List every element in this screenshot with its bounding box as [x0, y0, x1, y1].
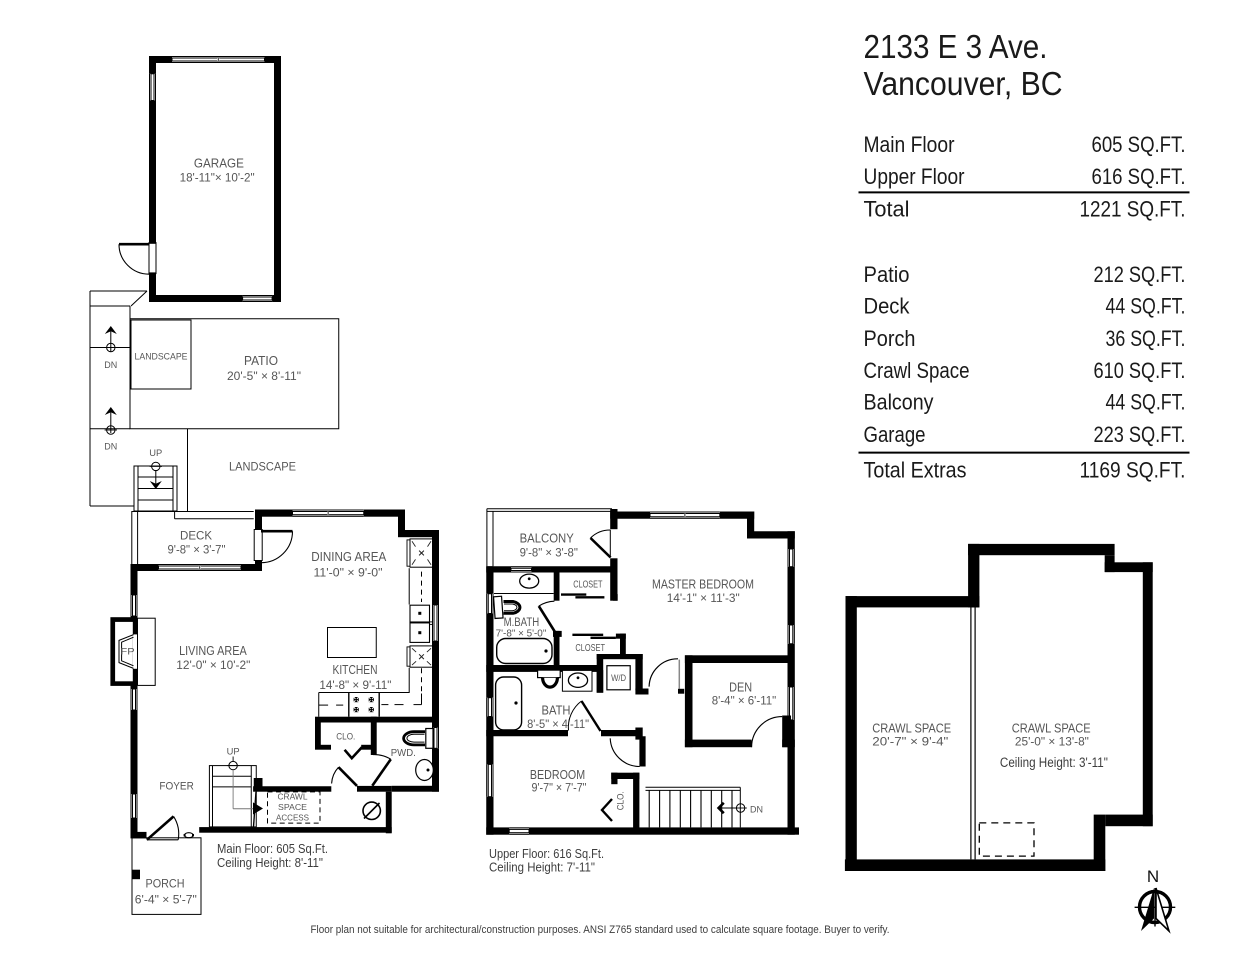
svg-text:20'-5" × 8'-11": 20'-5" × 8'-11": [227, 369, 301, 383]
svg-text:616 SQ.FT.: 616 SQ.FT.: [1092, 164, 1186, 189]
svg-text:BATH: BATH: [542, 703, 571, 717]
svg-text:DEN: DEN: [729, 679, 752, 694]
svg-text:DN: DN: [750, 804, 763, 815]
svg-text:FOYER: FOYER: [159, 780, 193, 792]
svg-text:610 SQ.FT.: 610 SQ.FT.: [1094, 358, 1186, 383]
svg-text:14'-8" × 9'-11": 14'-8" × 9'-11": [319, 678, 391, 692]
svg-text:Vancouver, BC: Vancouver, BC: [864, 65, 1063, 102]
svg-text:9'-8" × 3'-7": 9'-8" × 3'-7": [168, 544, 226, 556]
svg-text:223 SQ.FT.: 223 SQ.FT.: [1094, 422, 1186, 447]
svg-text:212 SQ.FT.: 212 SQ.FT.: [1094, 262, 1186, 287]
svg-text:CLOSET: CLOSET: [575, 643, 605, 654]
svg-text:11'-0" × 9'-0": 11'-0" × 9'-0": [314, 565, 383, 579]
svg-text:Main Floor: 605 Sq.Ft.: Main Floor: 605 Sq.Ft.: [217, 841, 328, 856]
svg-text:Patio: Patio: [864, 262, 910, 287]
svg-text:CLO.: CLO.: [616, 791, 627, 810]
svg-text:LANDSCAPE: LANDSCAPE: [229, 460, 296, 474]
svg-text:BALCONY: BALCONY: [520, 532, 575, 546]
svg-text:8'-5" × 4'-11": 8'-5" × 4'-11": [527, 717, 589, 731]
svg-text:Ceiling Height: 3'-11": Ceiling Height: 3'-11": [1000, 755, 1108, 770]
svg-text:CLOSET: CLOSET: [573, 580, 602, 591]
svg-text:Crawl Space: Crawl Space: [864, 358, 970, 383]
svg-text:PATIO: PATIO: [244, 354, 278, 368]
svg-text:605 SQ.FT.: 605 SQ.FT.: [1092, 132, 1186, 157]
svg-text:9'-8" × 3'-8": 9'-8" × 3'-8": [520, 548, 578, 560]
svg-text:FP: FP: [121, 647, 135, 658]
svg-text:SPACE: SPACE: [278, 803, 308, 812]
svg-text:PWD.: PWD.: [391, 748, 416, 759]
svg-text:UP: UP: [149, 448, 162, 459]
svg-text:W/D: W/D: [611, 673, 626, 683]
svg-text:CRAWL: CRAWL: [278, 793, 308, 802]
svg-text:ACCESS: ACCESS: [276, 814, 310, 823]
svg-text:Ceiling Height: 7'-11": Ceiling Height: 7'-11": [489, 860, 595, 875]
svg-text:DECK: DECK: [180, 529, 212, 543]
svg-text:Total Extras: Total Extras: [864, 457, 967, 482]
svg-text:GARAGE: GARAGE: [194, 157, 244, 171]
svg-text:44 SQ.FT.: 44 SQ.FT.: [1106, 390, 1186, 415]
svg-text:44 SQ.FT.: 44 SQ.FT.: [1106, 294, 1186, 319]
svg-text:8'-4" × 6'-11": 8'-4" × 6'-11": [712, 694, 777, 708]
svg-text:MASTER BEDROOM: MASTER BEDROOM: [652, 578, 754, 592]
svg-text:1221 SQ.FT.: 1221 SQ.FT.: [1080, 197, 1186, 222]
svg-text:Deck: Deck: [864, 294, 911, 319]
svg-text:N: N: [1147, 867, 1159, 886]
svg-text:6'-4" × 5'-7": 6'-4" × 5'-7": [135, 895, 197, 907]
svg-text:LANDSCAPE: LANDSCAPE: [135, 352, 188, 362]
svg-text:DN: DN: [104, 442, 117, 453]
svg-text:UP: UP: [227, 746, 240, 757]
svg-text:14'-1" × 11'-3": 14'-1" × 11'-3": [667, 591, 740, 605]
svg-text:2133 E 3 Ave.: 2133 E 3 Ave.: [864, 28, 1048, 65]
svg-text:7'-8" × 5'-0": 7'-8" × 5'-0": [496, 627, 547, 639]
svg-text:KITCHEN: KITCHEN: [333, 663, 378, 677]
svg-text:Main Floor: Main Floor: [864, 132, 955, 157]
svg-text:18'-11"× 10'-2": 18'-11"× 10'-2": [180, 170, 255, 184]
svg-text:36 SQ.FT.: 36 SQ.FT.: [1106, 326, 1186, 351]
svg-text:DN: DN: [104, 360, 117, 371]
svg-text:Porch: Porch: [864, 326, 916, 351]
svg-text:1169 SQ.FT.: 1169 SQ.FT.: [1080, 457, 1186, 482]
svg-text:Ceiling Height: 8'-11": Ceiling Height: 8'-11": [217, 855, 323, 870]
svg-text:DINING AREA: DINING AREA: [311, 550, 387, 564]
svg-text:PORCH: PORCH: [146, 876, 185, 890]
svg-text:Floor plan not suitable for ar: Floor plan not suitable for architectura…: [311, 924, 890, 936]
svg-text:20'-7" × 9'-4": 20'-7" × 9'-4": [872, 734, 948, 748]
svg-text:Balcony: Balcony: [864, 390, 934, 415]
svg-text:25'-0" × 13'-8": 25'-0" × 13'-8": [1015, 734, 1089, 748]
svg-text:9'-7" × 7'-7": 9'-7" × 7'-7": [532, 783, 587, 795]
svg-text:12'-0" × 10'-2": 12'-0" × 10'-2": [176, 658, 250, 672]
svg-text:BEDROOM: BEDROOM: [530, 768, 585, 782]
svg-text:Total: Total: [864, 197, 910, 222]
svg-text:LIVING AREA: LIVING AREA: [179, 644, 247, 658]
svg-text:CLO.: CLO.: [336, 732, 355, 743]
svg-text:Garage: Garage: [864, 422, 926, 447]
svg-text:Upper Floor: Upper Floor: [864, 164, 965, 189]
